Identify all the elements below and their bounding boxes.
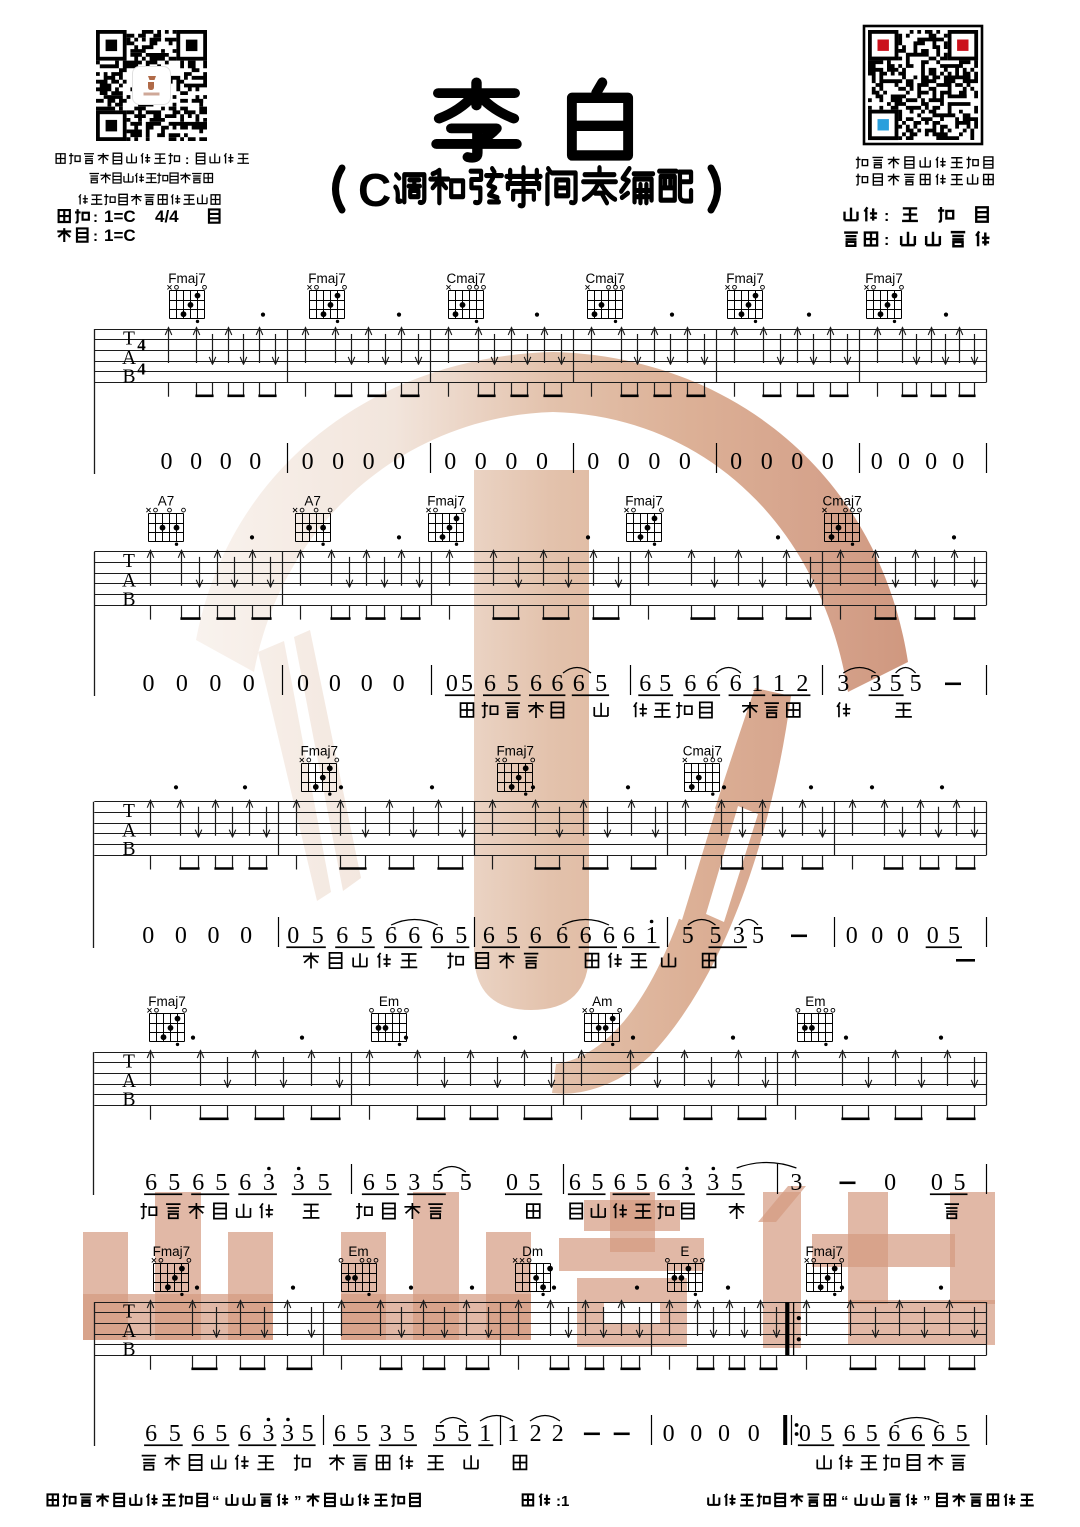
svg-text:5: 5 [866,1421,878,1447]
svg-text:5: 5 [385,1170,397,1196]
svg-text:3: 3 [282,1421,294,1447]
svg-text:6: 6 [603,923,615,949]
svg-text:Cmaj7: Cmaj7 [683,744,722,759]
svg-text:2: 2 [796,671,808,697]
svg-text:6: 6 [730,671,742,697]
svg-text:6: 6 [933,1421,945,1447]
svg-text:6: 6 [684,671,696,697]
svg-text:Fmaj7: Fmaj7 [148,994,186,1009]
svg-text:0: 0 [176,671,188,697]
svg-text:2: 2 [552,1421,564,1447]
svg-text:T: T [123,1051,135,1072]
svg-text:0: 0 [679,449,691,475]
svg-text:Fmaj7: Fmaj7 [496,744,534,759]
svg-text:1=C: 1=C [104,207,136,226]
svg-text:5: 5 [312,923,324,949]
svg-text:5: 5 [455,923,467,949]
svg-text::: : [93,228,98,245]
svg-text:0: 0 [884,1170,896,1196]
svg-text:Fmaj7: Fmaj7 [625,494,663,509]
svg-text:5: 5 [215,1421,227,1447]
svg-text:0: 0 [871,449,883,475]
svg-text:3: 3 [707,1170,719,1196]
svg-text:6: 6 [556,923,568,949]
svg-text:Fmaj7: Fmaj7 [153,1244,191,1259]
svg-text:5: 5 [169,1421,181,1447]
svg-text:0: 0 [175,923,187,949]
svg-text:3: 3 [380,1421,392,1447]
svg-text:C: C [358,164,391,216]
svg-text:5: 5 [636,1170,648,1196]
svg-text:5: 5 [948,923,960,949]
svg-text:6: 6 [484,671,496,697]
svg-text:B: B [122,839,135,860]
svg-text:3: 3 [870,671,882,697]
svg-text:5: 5 [356,1421,368,1447]
svg-text:4: 4 [137,336,146,355]
svg-text:4: 4 [137,360,146,379]
svg-text:3: 3 [408,1170,420,1196]
svg-text:6: 6 [530,923,542,949]
svg-text:0: 0 [952,449,964,475]
svg-text:0: 0 [730,449,742,475]
svg-text:5: 5 [215,1170,227,1196]
svg-text:6: 6 [573,671,585,697]
svg-text:6: 6 [658,1170,670,1196]
svg-text:0: 0 [444,449,456,475]
svg-text:”: ” [294,1493,302,1510]
svg-text:6: 6 [432,923,444,949]
svg-text:6: 6 [614,1170,626,1196]
svg-text:1: 1 [773,671,785,697]
svg-text:Fmaj7: Fmaj7 [726,271,764,286]
svg-text:6: 6 [530,671,542,697]
svg-text:5: 5 [361,923,373,949]
svg-text:”: ” [923,1493,931,1510]
svg-text:5: 5 [595,671,607,697]
svg-text:5: 5 [890,671,902,697]
svg-text:A7: A7 [304,494,321,509]
svg-text:3: 3 [262,1421,274,1447]
svg-text:6: 6 [706,671,718,697]
svg-text:3: 3 [263,1170,275,1196]
svg-text::: : [884,208,889,225]
svg-text::: : [93,209,98,226]
svg-text:5: 5 [710,923,722,949]
svg-text:6: 6 [145,1170,157,1196]
svg-text:5: 5 [434,1421,446,1447]
svg-text:6: 6 [334,1421,346,1447]
svg-text:0: 0 [329,671,341,697]
svg-text:0: 0 [475,449,487,475]
svg-text:0: 0 [791,449,803,475]
svg-text:Dm: Dm [522,1244,543,1259]
svg-text:6: 6 [623,923,635,949]
svg-text:6: 6 [408,923,420,949]
svg-text:5: 5 [592,1170,604,1196]
svg-text:5: 5 [820,1421,832,1447]
svg-text:B: B [122,367,135,388]
svg-text:6: 6 [336,923,348,949]
svg-text:0: 0 [297,671,309,697]
svg-text:6: 6 [193,1421,205,1447]
svg-text:5: 5 [507,671,519,697]
svg-text:6: 6 [888,1421,900,1447]
svg-text:0: 0 [871,923,883,949]
svg-text:2: 2 [530,1421,542,1447]
svg-text:1: 1 [507,1421,519,1447]
svg-text:5: 5 [731,1170,743,1196]
svg-text:E: E [680,1244,689,1259]
svg-text:5: 5 [956,1421,968,1447]
svg-text:5: 5 [302,1421,314,1447]
svg-text:0: 0 [799,1421,811,1447]
svg-text:5: 5 [403,1421,415,1447]
svg-text:Fmaj7: Fmaj7 [865,271,903,286]
svg-text:5: 5 [752,923,764,949]
svg-text:3: 3 [681,1170,693,1196]
svg-text:3: 3 [733,923,745,949]
svg-text:0: 0 [446,671,458,697]
svg-text:6: 6 [844,1421,856,1447]
svg-text:“: “ [212,1493,220,1510]
svg-text:5: 5 [659,671,671,697]
svg-text:0: 0 [302,449,314,475]
svg-text:6: 6 [569,1170,581,1196]
svg-text:0: 0 [393,449,405,475]
svg-text:0: 0 [648,449,660,475]
svg-text:0: 0 [748,1421,760,1447]
svg-text:0: 0 [925,449,937,475]
svg-text:5: 5 [457,1421,469,1447]
svg-text:5: 5 [432,1170,444,1196]
svg-text:5: 5 [318,1170,330,1196]
svg-text:0: 0 [898,449,910,475]
svg-text:5: 5 [528,1170,540,1196]
svg-text:0: 0 [690,1421,702,1447]
svg-text:0: 0 [142,923,154,949]
svg-text:0: 0 [143,671,155,697]
svg-text:5: 5 [461,671,473,697]
svg-text:0: 0 [822,449,834,475]
svg-text:5: 5 [168,1170,180,1196]
svg-text:0: 0 [249,449,261,475]
svg-text:0: 0 [332,449,344,475]
svg-text:Cmaj7: Cmaj7 [822,494,861,509]
svg-text:0: 0 [718,1421,730,1447]
svg-text:6: 6 [551,671,563,697]
svg-text:Fmaj7: Fmaj7 [308,271,346,286]
svg-text:0: 0 [220,449,232,475]
svg-text:Em: Em [379,994,399,1009]
svg-text:Em: Em [805,994,825,1009]
svg-text:0: 0 [363,449,375,475]
svg-text:0: 0 [927,923,939,949]
svg-text:Em: Em [348,1244,368,1259]
svg-text:0: 0 [209,671,221,697]
svg-text:6: 6 [483,923,495,949]
svg-text:Fmaj7: Fmaj7 [427,494,465,509]
svg-text:“: “ [841,1493,849,1510]
svg-text:T: T [123,328,135,349]
svg-text:3: 3 [293,1170,305,1196]
svg-text:0: 0 [505,449,517,475]
svg-text:0: 0 [587,449,599,475]
svg-text:Cmaj7: Cmaj7 [585,271,624,286]
svg-text::: : [185,152,189,167]
svg-text:0: 0 [536,449,548,475]
svg-text:1=C: 1=C [104,226,136,245]
svg-text:5: 5 [506,923,518,949]
svg-text:0: 0 [287,923,299,949]
svg-text:T: T [123,551,135,572]
svg-text:B: B [122,1340,135,1361]
svg-text:6: 6 [145,1421,157,1447]
svg-text:0: 0 [161,449,173,475]
svg-text:1: 1 [646,923,658,949]
svg-text:0: 0 [663,1421,675,1447]
svg-text:3: 3 [837,671,849,697]
svg-text::: : [884,232,889,249]
svg-text:6: 6 [239,1170,251,1196]
svg-text:5: 5 [682,923,694,949]
svg-text:6: 6 [363,1170,375,1196]
svg-text:6: 6 [580,923,592,949]
svg-text:5: 5 [954,1170,966,1196]
svg-text:1: 1 [479,1421,491,1447]
svg-text:Am: Am [592,994,612,1009]
svg-text:B: B [122,589,135,610]
svg-text:Cmaj7: Cmaj7 [446,271,485,286]
svg-text:5: 5 [460,1170,472,1196]
svg-text:0: 0 [240,923,252,949]
svg-text:0: 0 [361,671,373,697]
svg-text:Fmaj7: Fmaj7 [168,271,206,286]
svg-text:6: 6 [239,1421,251,1447]
svg-text:6: 6 [639,671,651,697]
svg-text:0: 0 [208,923,220,949]
svg-text:3: 3 [790,1170,802,1196]
svg-text:5: 5 [910,671,922,697]
svg-text::1: :1 [556,1493,569,1510]
svg-text:0: 0 [761,449,773,475]
svg-text:0: 0 [897,923,909,949]
svg-text:0: 0 [506,1170,518,1196]
svg-text:0: 0 [190,449,202,475]
svg-text:Fmaj7: Fmaj7 [805,1244,843,1259]
svg-text:6: 6 [911,1421,923,1447]
svg-text:6: 6 [192,1170,204,1196]
svg-text:B: B [122,1090,135,1111]
svg-text:0: 0 [618,449,630,475]
svg-text:4/4: 4/4 [155,207,179,226]
svg-text:Fmaj7: Fmaj7 [301,744,339,759]
svg-text:T: T [123,801,135,822]
svg-text:1: 1 [751,671,763,697]
svg-text:6: 6 [385,923,397,949]
svg-text:A7: A7 [158,494,175,509]
svg-text:0: 0 [393,671,405,697]
svg-text:0: 0 [931,1170,943,1196]
svg-text:0: 0 [243,671,255,697]
svg-text:0: 0 [846,923,858,949]
svg-text:T: T [123,1301,135,1322]
